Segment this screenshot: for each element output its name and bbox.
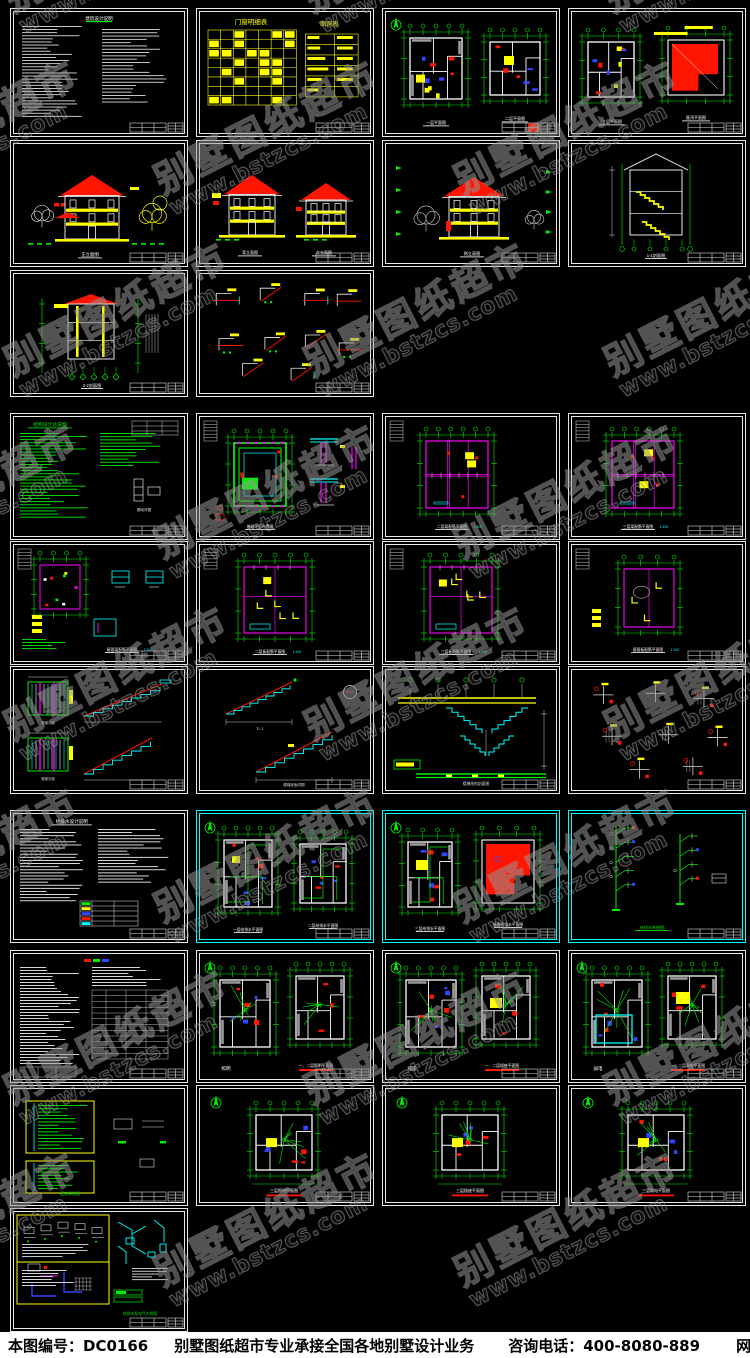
sheet-plumbing-plan-3f-roof[interactable]: 三层给排水平面图屋面给排水平面图	[382, 810, 560, 943]
elec2-art: 照明一、二层照明平面图	[200, 954, 370, 1079]
sheet-mep-details[interactable]: 给排水及电气大样图	[10, 1208, 188, 1332]
svg-text:给排水系统图: 给排水系统图	[640, 924, 664, 930]
svg-text:正立面图: 正立面图	[81, 251, 99, 258]
plan_roof-art: 三层平面图屋顶平面图	[572, 12, 742, 133]
svg-text:三层梁配筋平面图: 三层梁配筋平面图	[623, 524, 654, 529]
sheet-lighting-plan-1f-2f[interactable]: 照明一、二层照明平面图	[196, 950, 374, 1083]
svg-text:2-2剖面图: 2-2剖面图	[83, 382, 102, 389]
sheet-section-2-2[interactable]: 2-2剖面图	[10, 270, 188, 397]
sheet-arch-details[interactable]	[196, 270, 374, 397]
sheet-struct-node-details[interactable]	[568, 666, 746, 794]
svg-text:基础详图: 基础详图	[137, 507, 152, 512]
sheet-struct-notes[interactable]: 结构设计总说明基础详图	[10, 413, 188, 540]
cad-collage-canvas: 建筑设计说明门窗明细表图例表一层平面图二层平面图三层平面图屋顶平面图正立面图背立…	[0, 0, 750, 1358]
sheet-lighting-plan-3f[interactable]: 三层照明平面图	[196, 1085, 374, 1206]
sheet-stair-structure[interactable]: 楼梯结构剖面图	[382, 666, 560, 794]
sheet-stair-plan-details[interactable]: 楼梯平面楼梯平面	[10, 666, 188, 794]
elec2-art: 弱电一、二层弱电平面图	[572, 954, 742, 1079]
svg-text:1:100: 1:100	[660, 525, 669, 529]
framing-art: 二层梁配筋平面图1:100	[386, 417, 556, 536]
svg-text:1:100: 1:100	[144, 648, 153, 652]
plumb_notes-art: 给排水设计说明	[14, 814, 184, 939]
sheet-telecom-plan-3f[interactable]: 三层弱电平面图	[568, 1085, 746, 1206]
svg-text:三层插座平面图: 三层插座平面图	[456, 1187, 484, 1193]
svg-text:1-1剖面图: 1-1剖面图	[647, 252, 666, 259]
svg-text:照明: 照明	[221, 1066, 231, 1072]
svg-text:一、二层弱电平面图: 一、二层弱电平面图	[671, 1063, 705, 1068]
footer-website: 网址：www.bstzcs.com	[736, 1335, 750, 1356]
section2-art: 2-2剖面图	[14, 274, 184, 393]
sheet-beam-plan-3f[interactable]: 三层梁配筋平面图1:100	[568, 413, 746, 540]
risers-art: 给排水系统图	[572, 814, 742, 939]
elec_sys-art: 配电系统图	[14, 1089, 184, 1202]
svg-text:1:100: 1:100	[474, 525, 483, 529]
elev_side-art: 侧立面图	[386, 144, 556, 263]
svg-text:左立面图: 左立面图	[316, 249, 332, 255]
svg-text:楼梯平面: 楼梯平面	[41, 720, 55, 725]
sheet-slab-plan-3f[interactable]: 三层板配筋平面图1:100	[382, 541, 560, 665]
svg-text:屋顶平面图: 屋顶平面图	[686, 114, 706, 120]
slab-art: 二层板配筋平面图1:100	[200, 545, 370, 661]
sheet-plumbing-notes[interactable]: 给排水设计说明	[10, 810, 188, 943]
sheet-telecom-plan-1f-2f[interactable]: 弱电一、二层弱电平面图	[568, 950, 746, 1083]
svg-text:一层平面图: 一层平面图	[426, 119, 446, 125]
svg-text:二层平面图: 二层平面图	[505, 115, 525, 121]
footer-phone: 咨询电话：400-8080-889	[508, 1335, 700, 1356]
sheet-slab-plan-2f[interactable]: 二层板配筋平面图1:100	[196, 541, 374, 665]
svg-text:侧立面图: 侧立面图	[464, 250, 481, 257]
svg-text:二层给排水平面图: 二层给排水平面图	[308, 923, 339, 928]
stair_sections-art: TL-1楼梯剖面详图	[200, 670, 370, 790]
svg-text:三层板配筋平面图: 三层板配筋平面图	[441, 649, 472, 654]
sheet-beam-plan-2f[interactable]: 二层梁配筋平面图1:100	[382, 413, 560, 540]
svg-text:弱电: 弱电	[593, 1065, 603, 1072]
plumb_roof-art: 三层给排水平面图屋面给排水平面图	[386, 814, 556, 939]
sheet-plumbing-risers[interactable]: 给排水系统图	[568, 810, 746, 943]
sheet-socket-plan-3f[interactable]: 三层插座平面图	[382, 1085, 560, 1206]
slab-art: 三层板配筋平面图1:100	[386, 545, 556, 661]
footer-sheet-number: 本图编号：DC0166	[8, 1335, 148, 1356]
plan1-art: 三层弱电平面图	[572, 1089, 742, 1202]
svg-text:图例表: 图例表	[320, 20, 338, 28]
svg-text:基础平面布置图: 基础平面布置图	[247, 524, 274, 529]
sheets-grid: 建筑设计说明门窗明细表图例表一层平面图二层平面图三层平面图屋顶平面图正立面图背立…	[0, 0, 750, 1358]
svg-text:配电系统图: 配电系统图	[60, 1190, 80, 1196]
nodes_mixed-art	[572, 670, 742, 790]
sheet-foundation-plan[interactable]: 基础平面布置图	[196, 413, 374, 540]
svg-text:一、二层插座平面图: 一、二层插座平面图	[485, 1063, 519, 1068]
section_stair-art: 1-1剖面图	[572, 144, 742, 263]
svg-text:二层板配筋平面图: 二层板配筋平面图	[255, 649, 286, 654]
elev_front-art: 正立面图	[14, 144, 184, 263]
svg-text:楼梯平面: 楼梯平面	[41, 776, 55, 781]
svg-text:屋面板配筋平面图: 屋面板配筋平面图	[633, 647, 664, 652]
svg-text:三层给排水平面图: 三层给排水平面图	[415, 926, 446, 931]
slab_small-art: 屋面板配筋平面图1:100	[572, 545, 742, 661]
notes_green-art: 结构设计总说明基础详图	[14, 417, 184, 536]
svg-text:三层平面图: 三层平面图	[602, 118, 622, 124]
svg-text:给排水设计说明: 给排水设计说明	[56, 818, 89, 825]
framing-art: 三层梁配筋平面图1:100	[572, 417, 742, 536]
framing_small-art: 屋面梁配筋平面图1:100	[14, 545, 184, 661]
sheet-power-system[interactable]: 配电系统图	[10, 1085, 188, 1206]
elec_notes-art	[14, 954, 184, 1079]
sheet-stair-section-details[interactable]: TL-1楼梯剖面详图	[196, 666, 374, 794]
notes_white-art: 建筑设计说明	[14, 12, 184, 133]
svg-text:TL-1: TL-1	[256, 727, 263, 731]
tables_yellow-art: 门窗明细表图例表	[200, 12, 370, 133]
svg-text:1:100: 1:100	[293, 650, 302, 654]
sheet-elev-front[interactable]: 正立面图	[10, 140, 188, 267]
footer-bar: 本图编号：DC0166 别墅图纸超市专业承接全国各地别墅设计业务 咨询电话：40…	[0, 1332, 750, 1358]
sheet-roof-slab-plan[interactable]: 屋面板配筋平面图1:100	[568, 541, 746, 665]
plan2-art: 一层平面图二层平面图	[386, 12, 556, 133]
svg-text:插座: 插座	[407, 1065, 417, 1072]
svg-text:三层照明平面图: 三层照明平面图	[270, 1187, 298, 1193]
sheet-door-window-schedule[interactable]: 门窗明细表图例表	[196, 8, 374, 137]
sheet-section-1-1[interactable]: 1-1剖面图	[568, 140, 746, 267]
sheet-plan-3f-roof[interactable]: 三层平面图屋顶平面图	[568, 8, 746, 137]
foundation-art: 基础平面布置图	[200, 417, 370, 536]
svg-text:1:100: 1:100	[479, 650, 488, 654]
sheet-elev-side[interactable]: 侧立面图	[382, 140, 560, 267]
svg-text:一层给排水平面图: 一层给排水平面图	[233, 927, 264, 932]
plan1-art: 三层插座平面图	[386, 1089, 556, 1202]
stair_elev-art: 楼梯结构剖面图	[386, 670, 556, 790]
svg-text:三层弱电平面图: 三层弱电平面图	[642, 1187, 670, 1193]
sheet-elev-back-left[interactable]: 背立面图左立面图	[196, 140, 374, 267]
svg-text:门窗明细表: 门窗明细表	[235, 17, 268, 26]
sheet-arch-notes[interactable]: 建筑设计说明	[10, 8, 188, 137]
stair_plans-art: 楼梯平面楼梯平面	[14, 670, 184, 790]
svg-text:一、二层照明平面图: 一、二层照明平面图	[299, 1063, 333, 1068]
plumb2-art: 一层给排水平面图二层给排水平面图	[200, 814, 370, 939]
sheet-plan-1f-2f[interactable]: 一层平面图二层平面图	[382, 8, 560, 137]
sheet-plumbing-plan-1f-2f[interactable]: 一层给排水平面图二层给排水平面图	[196, 810, 374, 943]
detail_quad-art: 给排水及电气大样图	[14, 1212, 184, 1328]
details_red-art	[200, 274, 370, 393]
svg-text:楼梯结构剖面图: 楼梯结构剖面图	[463, 781, 490, 786]
plan1-art: 三层照明平面图	[200, 1089, 370, 1202]
footer-service-text: 别墅图纸超市专业承接全国各地别墅设计业务	[174, 1335, 474, 1356]
svg-text:二层梁配筋平面图: 二层梁配筋平面图	[437, 524, 468, 529]
sheet-electrical-notes[interactable]	[10, 950, 188, 1083]
svg-text:背立面图: 背立面图	[242, 249, 258, 255]
svg-text:屋面给排水平面图: 屋面给排水平面图	[493, 922, 524, 927]
svg-text:楼梯剖面详图: 楼梯剖面详图	[283, 782, 305, 787]
svg-text:1:100: 1:100	[671, 648, 680, 652]
svg-text:结构设计总说明: 结构设计总说明	[33, 421, 67, 428]
elec2-art: 插座一、二层插座平面图	[386, 954, 556, 1079]
svg-text:给排水及电气大样图: 给排水及电气大样图	[123, 1311, 157, 1316]
sheet-socket-plan-1f-2f[interactable]: 插座一、二层插座平面图	[382, 950, 560, 1083]
sheet-roof-beam-plan[interactable]: 屋面梁配筋平面图1:100	[10, 541, 188, 665]
elev2-art: 背立面图左立面图	[200, 144, 370, 263]
